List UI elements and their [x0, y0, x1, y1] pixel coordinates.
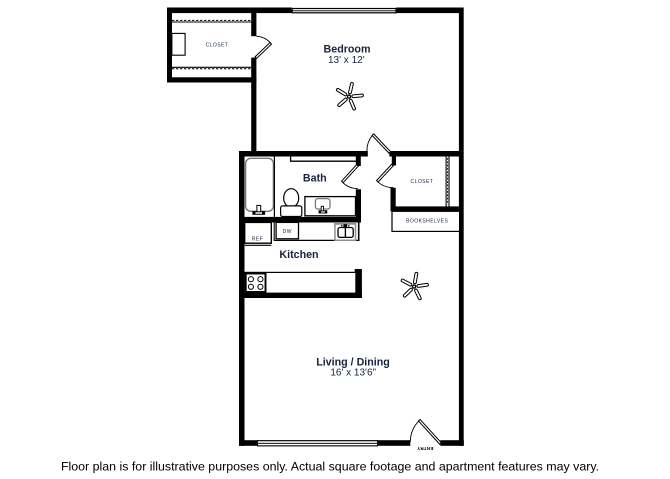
svg-text:16' x 13'6": 16' x 13'6" — [330, 368, 376, 379]
svg-text:DW: DW — [283, 229, 292, 235]
svg-text:Bedroom: Bedroom — [324, 44, 371, 56]
svg-text:Bath: Bath — [303, 172, 327, 184]
svg-text:Living / Dining: Living / Dining — [316, 356, 390, 368]
svg-text:REF: REF — [252, 236, 263, 242]
svg-text:13' x 12': 13' x 12' — [328, 55, 365, 66]
svg-text:CLOSET: CLOSET — [411, 179, 434, 185]
svg-text:Floor plan is for illustrative: Floor plan is for illustrative purposes … — [61, 459, 599, 473]
svg-text:Kitchen: Kitchen — [279, 249, 318, 261]
svg-text:ENTRY: ENTRY — [417, 446, 433, 451]
svg-text:CLOSET: CLOSET — [206, 43, 229, 49]
svg-text:BOOKSHELVES: BOOKSHELVES — [406, 218, 448, 224]
